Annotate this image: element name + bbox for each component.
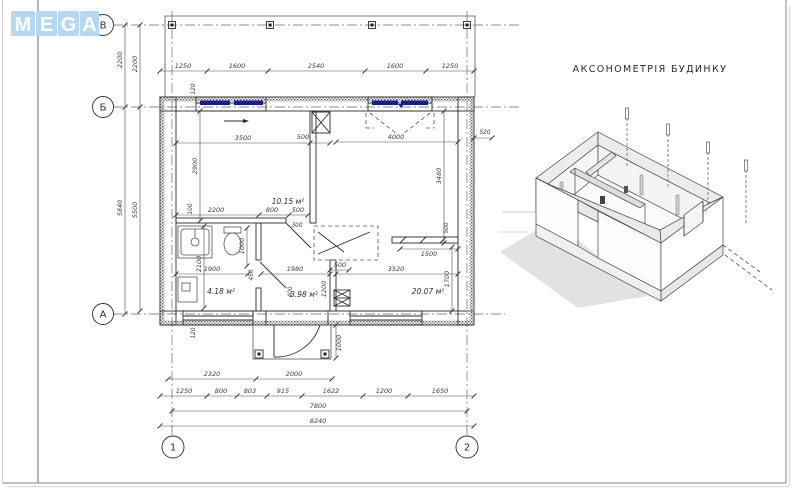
logo-letter-a: A [82, 14, 96, 36]
grid-bubble-v: В [100, 21, 107, 32]
dim-left-inner-vb: 2200 [131, 56, 139, 73]
axonometry-title: АКСОНОМЕТРІЯ БУДИНКУ [573, 64, 728, 75]
direction-arrow [224, 119, 249, 123]
dim-offset-right: 520 [479, 130, 490, 136]
dim-bedroom-h: 2900 [191, 158, 199, 175]
dim-b1-1: 2000 [286, 370, 303, 378]
dim-b2-3: 915 [277, 387, 289, 395]
dim-b2-6: 1650 [432, 387, 449, 395]
dim-hall-w: 1980 [287, 265, 304, 273]
room-bedroom-area: 10.15 м² [272, 197, 305, 206]
room-hall-area: 3.98 м² [290, 290, 318, 299]
dim-living-1700: 1700 [443, 271, 451, 288]
dim-door-300: 300 [291, 223, 302, 229]
dim-top-3: 1600 [387, 62, 404, 70]
dim-b2-5: 1200 [376, 387, 393, 395]
screenshot-root: В Б А 1 2 1250 1600 2540 1600 1250 2200 … [0, 0, 800, 491]
dim-offset-left-top: 120 [191, 83, 197, 94]
window-glazing [200, 101, 230, 106]
axonometric-view: АКСОНОМЕТРІЯ БУДИНКУ [498, 64, 772, 308]
grid-bubble-2: 2 [464, 443, 470, 454]
dim-porch-h: 1000 [335, 335, 343, 352]
dim-top-1: 1600 [229, 62, 246, 70]
washer [178, 277, 197, 302]
kitchen-counter [392, 237, 458, 243]
dim-b1-0: 2320 [204, 370, 221, 378]
room-bath-area: 4.18 м² [207, 287, 235, 296]
grid-bubble-b: Б [100, 103, 107, 114]
dim-living-500: 500 [444, 222, 450, 233]
dim-left-outer-vb: 2200 [116, 52, 124, 69]
grid-bubble-a: А [100, 310, 107, 321]
dim-hall-1200: 1200 [320, 281, 328, 298]
dim-b2-1: 800 [215, 387, 227, 395]
dim-bedroom-w: 3500 [235, 134, 252, 142]
logo-letter-e: E [40, 14, 53, 36]
dim-bedroom-b3: 500 [292, 206, 304, 214]
dim-left-inner-ba: 5500 [131, 202, 139, 219]
dim-living-w: 3520 [388, 265, 405, 273]
vent-shaft-top [312, 112, 330, 133]
grid-lines [113, 11, 522, 435]
dim-offset-left-bottom: 120 [191, 327, 197, 338]
floor-plan-drawing: В Б А 1 2 1250 1600 2540 1600 1250 2200 … [0, 0, 800, 491]
dim-hall-500: 500 [334, 261, 346, 269]
dim-top-4: 1250 [442, 62, 459, 70]
logo: M E G A [11, 11, 99, 36]
dim-bedroom-b1: 2200 [208, 206, 225, 214]
dim-top-2: 2540 [308, 62, 325, 70]
room-living-area: 20.07 м² [412, 287, 445, 296]
dim-living-top: 4000 [388, 133, 405, 141]
shower-tray [178, 226, 212, 258]
canopy-outline [165, 16, 475, 97]
dim-top-0: 1250 [175, 62, 192, 70]
dim-offset-100: 100 [188, 203, 194, 214]
logo-letter-m: M [15, 14, 32, 36]
dim-bath-w: 1900 [204, 265, 221, 273]
dim-bedroom-niche: 500 [297, 133, 309, 141]
dim-left-outer-ba: 5840 [116, 200, 124, 217]
dim-bath-wc: 1000 [238, 238, 246, 255]
dim-bath-450: 450 [249, 269, 255, 280]
bath-door-leaf [260, 262, 286, 288]
dim-living-shelf: 1500 [421, 250, 438, 258]
dim-total-full: 8240 [310, 417, 327, 425]
dim-bedroom-b2: 800 [266, 206, 278, 214]
dim-b2-0: 1250 [176, 387, 193, 395]
wardrobe-dashed [314, 226, 378, 260]
logo-letter-g: G [61, 14, 77, 36]
dim-bath-h: 2100 [195, 256, 203, 273]
dim-b2-4: 1622 [323, 387, 340, 395]
dim-b2-2: 803 [244, 387, 256, 395]
dim-total-grid: 7800 [310, 402, 327, 410]
dim-living-h: 3480 [435, 168, 443, 185]
french-window-swing [366, 113, 434, 134]
entry-door-swing [274, 325, 320, 357]
porch [253, 325, 331, 359]
dimension-lines [123, 23, 495, 429]
grid-bubble-1: 1 [170, 443, 176, 454]
